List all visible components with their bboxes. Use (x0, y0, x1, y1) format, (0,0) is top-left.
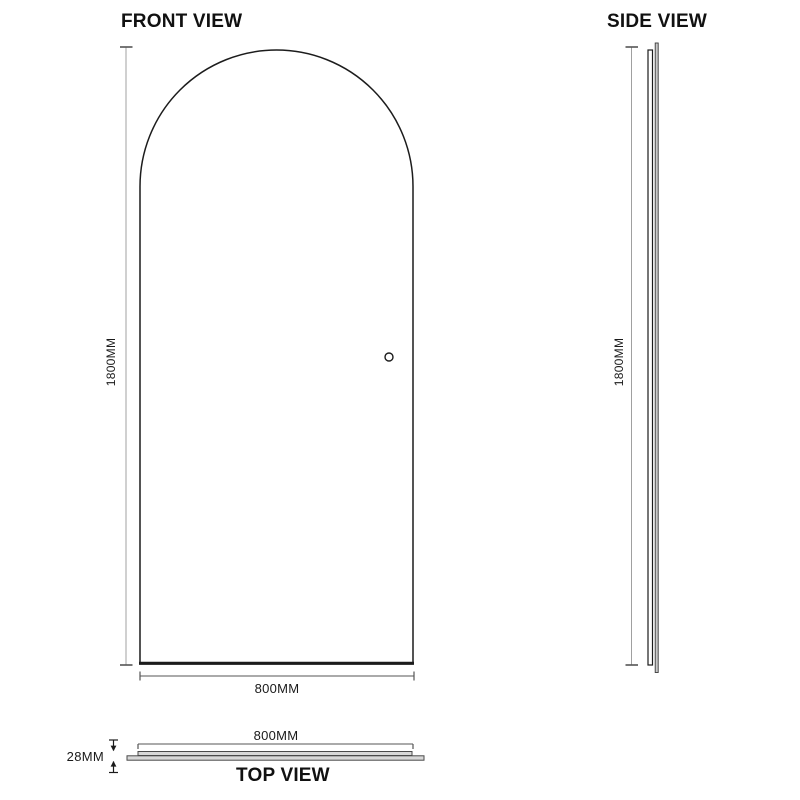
front-view-knob-circle (385, 353, 393, 361)
side-view-title: SIDE VIEW (607, 11, 707, 33)
top-view-width-dimension-label: 800MM (236, 729, 316, 743)
top-view-title: TOP VIEW (236, 765, 316, 787)
front-view-width-dimension-label: 800MM (237, 682, 317, 696)
top-view-thickness-dimension-label: 28MM (64, 750, 104, 764)
front-view-arched-panel-outline (140, 50, 413, 664)
technical-drawing-page: FRONT VIEW SIDE VIEW TOP VIEW 1800MM 800… (0, 0, 800, 800)
drawing-canvas (0, 0, 800, 800)
side-view-height-dimension-label: 1800MM (612, 322, 626, 402)
top-view-panel-bar (138, 752, 412, 756)
top-view-thickness-up-arrowhead (111, 761, 117, 767)
front-view-title: FRONT VIEW (121, 11, 242, 33)
side-view-backing-profile (655, 43, 658, 673)
top-view-backing-bar (127, 756, 424, 760)
top-view-thickness-down-arrowhead (111, 746, 117, 752)
front-view-height-dimension-label: 1800MM (104, 322, 118, 402)
side-view-panel-profile (648, 50, 653, 665)
